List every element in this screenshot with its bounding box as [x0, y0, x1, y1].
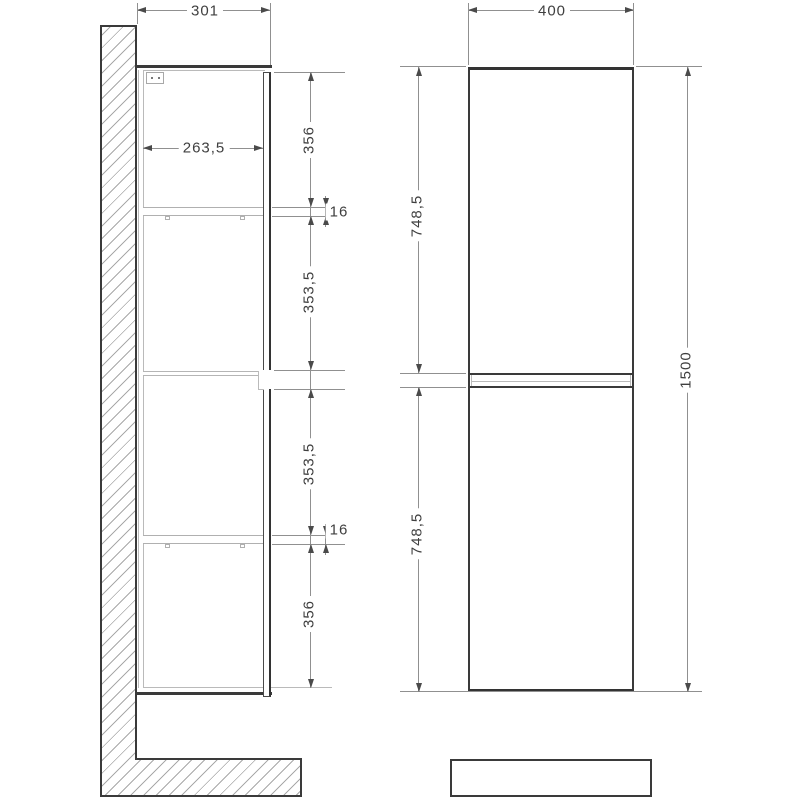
- ext-line: [270, 3, 271, 65]
- ext-line: [400, 691, 702, 692]
- dim-label-lower-mid-section: 353,5: [301, 439, 318, 490]
- ext-line: [137, 3, 138, 24]
- side-top-panel: [137, 65, 272, 68]
- arrowhead: [308, 216, 314, 225]
- middle-divider-step-h: [258, 389, 264, 390]
- dim-label-inner-depth: 263,5: [179, 140, 230, 157]
- front-lower-door-top-edge: [468, 386, 634, 388]
- ext-line: [633, 3, 634, 65]
- arrowhead: [261, 7, 270, 13]
- side-bottom-panel: [137, 692, 272, 695]
- arrowhead: [308, 544, 314, 553]
- front-gap-inner-line: [471, 381, 631, 382]
- ext-line: [400, 387, 466, 388]
- bracket-dot: [158, 77, 160, 79]
- shelf-pin: [165, 544, 170, 548]
- shelf-lower: [143, 535, 263, 544]
- floor-bottom-edge: [100, 795, 302, 797]
- arrowhead: [468, 7, 477, 13]
- shelf-upper: [143, 207, 263, 216]
- front-upper-door-bottom-edge: [468, 373, 634, 375]
- technical-drawing-canvas: 301 263,5 356 16 353,5 35: [0, 0, 800, 800]
- wall-top-edge: [100, 25, 137, 27]
- arrowhead: [308, 389, 314, 398]
- wall-right-edge: [135, 25, 137, 758]
- front-cabinet-body: [468, 67, 634, 692]
- arrowhead: [308, 72, 314, 81]
- dim-label-top-section: 356: [301, 122, 318, 158]
- arrowhead: [416, 387, 422, 396]
- side-upper-door: [263, 72, 271, 370]
- dim-label-shelf-thickness-top: 16: [326, 204, 353, 221]
- arrowhead: [143, 145, 152, 151]
- front-floor-strip: [450, 759, 652, 797]
- dim-label-lower-door: 748,5: [409, 509, 426, 560]
- arrowhead: [308, 526, 314, 535]
- arrowhead: [416, 364, 422, 373]
- dim-label-width: 400: [534, 3, 570, 20]
- ext-line: [400, 373, 466, 374]
- middle-divider-step-v: [258, 371, 259, 390]
- dim-label-total-height: 1500: [678, 347, 695, 392]
- side-back-panel-line-2: [143, 70, 144, 688]
- arrowhead: [685, 67, 691, 76]
- arrowhead: [685, 683, 691, 692]
- dim-label-upper-mid-section: 353,5: [301, 267, 318, 318]
- arrowhead: [308, 361, 314, 370]
- side-back-panel-line-1: [138, 70, 139, 688]
- wall-left-edge: [100, 25, 102, 797]
- side-top-panel-underline: [143, 70, 265, 71]
- arrowhead: [416, 683, 422, 692]
- shelf-pin: [240, 216, 245, 220]
- arrowhead: [308, 679, 314, 688]
- floor-top-edge: [135, 758, 302, 760]
- arrowhead: [137, 7, 146, 13]
- side-lower-door: [263, 389, 271, 697]
- ext-line: [400, 66, 466, 67]
- floor-right-edge: [300, 758, 302, 797]
- arrowhead: [416, 67, 422, 76]
- arrowhead: [254, 145, 263, 151]
- bracket-dot: [151, 77, 153, 79]
- dim-label-depth: 301: [187, 3, 223, 20]
- shelf-pin: [240, 544, 245, 548]
- mounting-bracket: [146, 72, 164, 84]
- middle-divider: [143, 371, 258, 376]
- dim-label-bottom-section: 356: [301, 596, 318, 632]
- dim-label-upper-door: 748,5: [409, 191, 426, 242]
- side-bottom-inner-line: [143, 687, 332, 688]
- shelf-pin: [165, 216, 170, 220]
- ext-line: [468, 3, 469, 65]
- ext-line: [636, 66, 702, 67]
- dim-label-shelf-thickness-bottom: 16: [326, 522, 353, 539]
- arrowhead: [323, 544, 329, 553]
- arrowhead: [308, 198, 314, 207]
